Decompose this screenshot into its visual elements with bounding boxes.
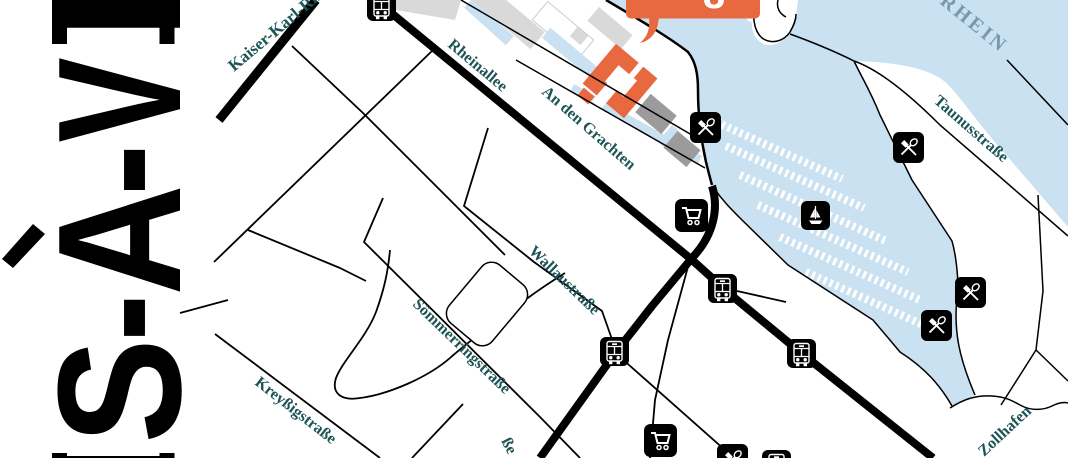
- svg-text:8: 8: [703, 0, 725, 17]
- svg-text:A: A: [21, 185, 217, 296]
- svg-text:I: I: [22, 0, 218, 42]
- svg-text:V: V: [21, 57, 218, 142]
- svg-text:-: -: [21, 294, 218, 341]
- svg-text:S: S: [22, 338, 218, 443]
